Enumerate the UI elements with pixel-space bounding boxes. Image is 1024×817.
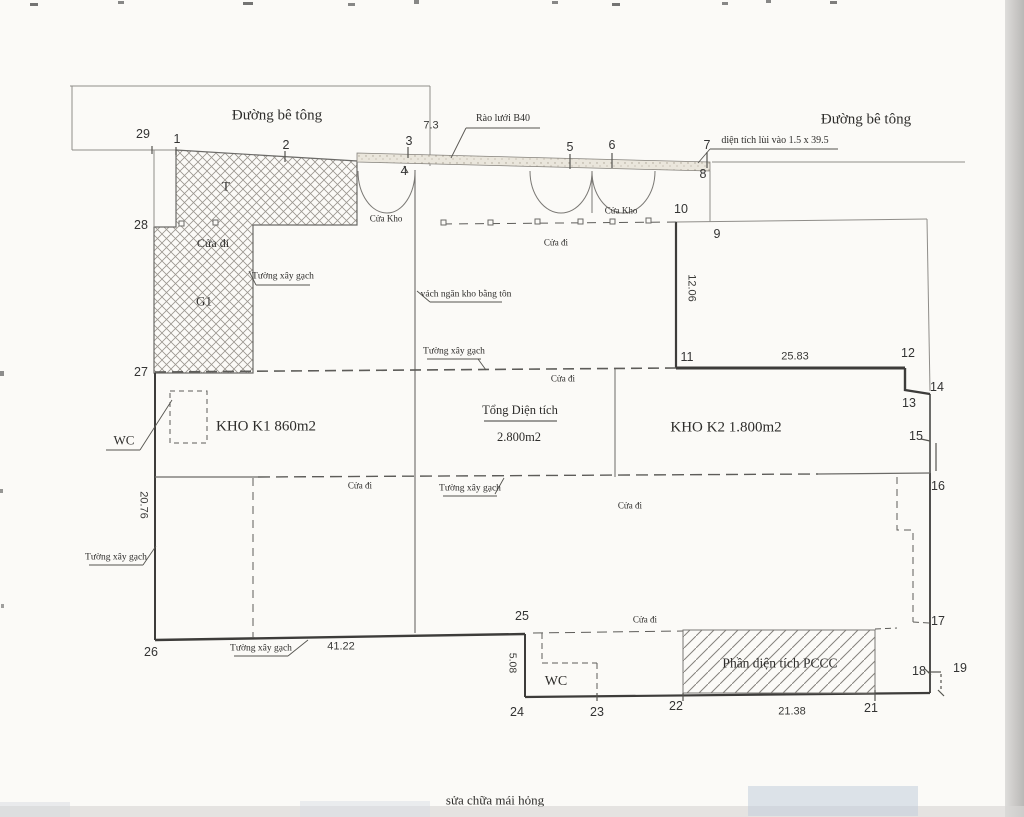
- door-arcs: [358, 171, 655, 213]
- floorplan-scan: Đường bê tôngĐường bê tôngRào lưới B40di…: [0, 0, 1024, 817]
- watermark-patch-1: [748, 786, 918, 816]
- pccc-area: [683, 630, 875, 693]
- walls: [155, 222, 930, 697]
- interior-partitions: [155, 170, 930, 633]
- scan-noise-top: [0, 0, 1024, 8]
- hatched-area-T-G1: [154, 150, 357, 373]
- watermark-patch-2: [300, 801, 430, 817]
- fence-band: [357, 153, 710, 171]
- floorplan-linework: [0, 0, 1024, 817]
- dashed-lines: [155, 222, 930, 695]
- survey-ticks: [152, 146, 944, 701]
- watermark-patch-3: [0, 802, 70, 817]
- scan-edge-right: [1005, 0, 1024, 817]
- scan-noise-left: [0, 0, 6, 817]
